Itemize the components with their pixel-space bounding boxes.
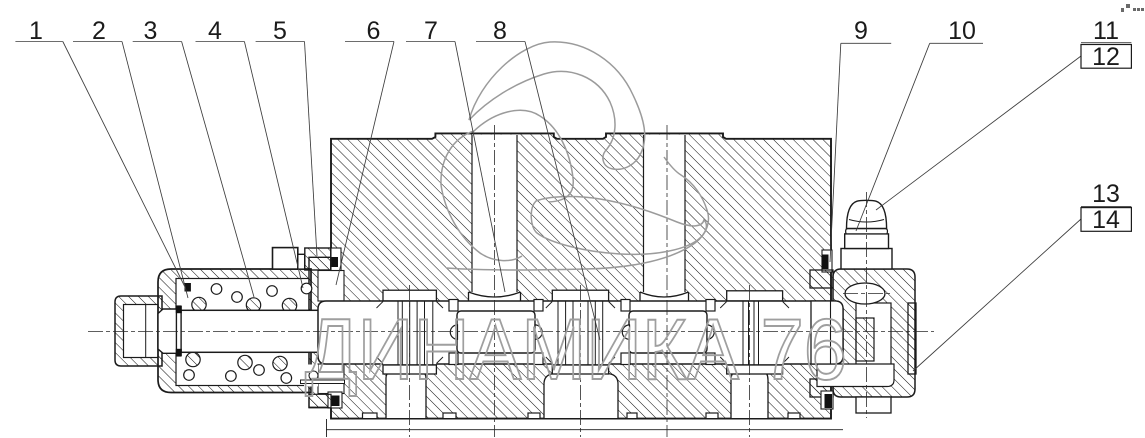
svg-text:12: 12 — [1092, 43, 1120, 71]
svg-text:10: 10 — [948, 17, 976, 45]
svg-text:8: 8 — [493, 17, 507, 45]
svg-text:9: 9 — [854, 17, 868, 45]
svg-text:1: 1 — [29, 17, 43, 45]
svg-text:6: 6 — [367, 17, 381, 45]
svg-text:4: 4 — [208, 17, 222, 45]
svg-text:2: 2 — [92, 17, 106, 45]
svg-text:ДИНАМИКА 76: ДИНАМИКА 76 — [305, 302, 847, 398]
svg-text:5: 5 — [273, 17, 287, 45]
svg-text:3: 3 — [144, 17, 158, 45]
svg-text:7: 7 — [424, 17, 438, 45]
svg-text:11: 11 — [1093, 17, 1119, 45]
svg-text:13: 13 — [1092, 180, 1120, 208]
svg-text:14: 14 — [1092, 206, 1120, 234]
